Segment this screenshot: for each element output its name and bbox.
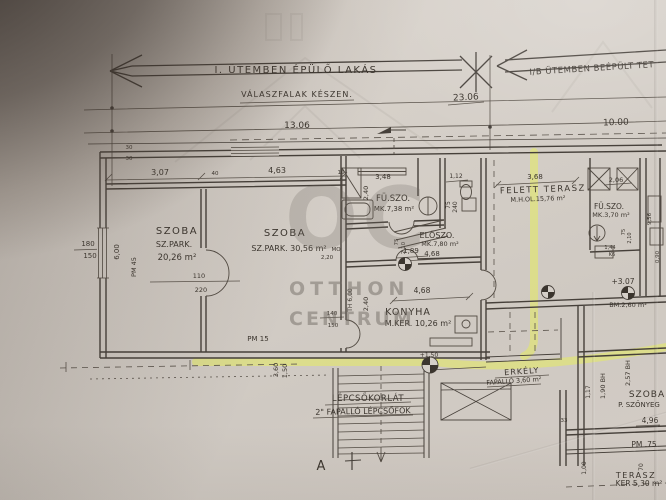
floor-plan-drawing: I. ÜTEMBEN ÉPÜLŐ LAKÁS VÁLASZFALAK KÉSZE… (0, 0, 666, 500)
door-dim-220: 220 (195, 286, 207, 294)
dim-3-07: 3,07 (151, 168, 169, 177)
phase-label-2: VÁLASZFALAK KÉSZEN. (241, 88, 353, 99)
note-lepcsokorlat: LÉPCSŐKORLÁT (332, 392, 405, 404)
room-label-furdo2: FÜ.SZO. (594, 202, 624, 211)
dim-23-06: 23.06 (453, 92, 480, 103)
dim-150b: 150 (328, 323, 339, 329)
ceiling-height-260: BM.2,60 m² (609, 301, 647, 309)
dim-pm-45: PM 45 (130, 257, 138, 277)
section-letter-A: A (317, 459, 326, 474)
room-floor-szoba2: SZ.PARK. 30,56 m² (251, 244, 326, 253)
room-label-eloszoba: ELŐSZO. (420, 230, 455, 240)
room-area-furdo2: MK.3,70 m² (592, 211, 630, 219)
dim-1-17: 1,17 (585, 385, 592, 399)
dim-40: 40 (212, 171, 219, 177)
dim-30-b: 30 (126, 156, 133, 162)
dim-k6: K6 (609, 252, 615, 258)
dim-4-68-kitchen: 4,68 (414, 286, 431, 295)
dim-1-44: 1,44 (604, 245, 615, 251)
room-area-konyha: M.KER. 10,26 m² (385, 319, 452, 328)
area-sub-felett-terasz: M.H.OL.15,76 m² (510, 194, 566, 204)
room-area-eloszoba: MK.7,80 m² (421, 240, 459, 248)
dim-3-48: 3,48 (375, 173, 391, 181)
section-marker-A-bottom (345, 452, 361, 470)
note-fapallo-lepcso: 2" FAPALLÓ LÉPCSŐFOK (315, 404, 411, 417)
room-label-konyha: KONYHA (385, 307, 431, 318)
phase-label-right: I/B ÜTEMBEN BEÉPÜLT TET (529, 58, 655, 78)
dim-4-68-hall: 4,68 (424, 250, 440, 258)
landing-hatch (441, 383, 511, 420)
window-dim-150: 150 (83, 252, 96, 260)
room-label-szoba3: SZOBA (629, 390, 665, 400)
dim-210-r: 2,10 (627, 232, 633, 243)
survey-marker (542, 286, 555, 299)
chimney-shaft-icon (588, 168, 610, 190)
dim-10-00: 10.00 (603, 118, 629, 129)
dim-pm-15: PM 15 (247, 335, 268, 343)
dim-0-90: 0,90 (655, 250, 661, 263)
dim-2-20: 2,20 (321, 255, 334, 261)
dim-2-40-b: 2,40 (362, 297, 370, 311)
dim-1-12: 1,12 (449, 173, 463, 180)
dim-33: 33 (561, 418, 568, 424)
dim-30-a: 30 (126, 145, 133, 151)
dim-10: 10 (338, 170, 345, 176)
survey-marker (399, 258, 412, 271)
dim-140: 140 (327, 311, 338, 317)
dimension-chains (60, 54, 666, 426)
dim-4-96: 4,96 (642, 416, 659, 425)
washbasin-icon (419, 197, 437, 215)
room-floor-szoba1: SZ.PARK. (156, 240, 192, 249)
window-dim-180: 180 (81, 240, 94, 248)
dim-257-bh: 2,57 BH (624, 360, 632, 386)
dim-wc-240: 240 (452, 201, 459, 213)
room-floor-szoba3: P. SZŐNYEG (618, 400, 660, 409)
phase-label-1: I. ÜTEMBEN ÉPÜLŐ LAKÁS (214, 62, 377, 76)
door-dim-110: 110 (193, 272, 205, 280)
survey-marker (422, 357, 438, 373)
room-label-szoba1: SZOBA (156, 226, 198, 237)
area-sub-terasz: KER 5,30 m² (616, 479, 663, 488)
dim-hall-210: 2,10 (401, 241, 407, 254)
room-label-szoba2: SZOBA (264, 228, 306, 239)
toilet-icon (460, 181, 472, 200)
dim-3-68: 3,68 (527, 173, 543, 181)
wc-sink-icon (462, 198, 476, 211)
dim-4-63: 4,63 (268, 166, 286, 175)
dim-th-600: TH 6,00 (347, 288, 354, 313)
highlighter-stroke-vertical (524, 152, 534, 356)
floor-plan-photo: I. ÜTEMBEN ÉPÜLŐ LAKÁS VÁLASZFALAK KÉSZE… (0, 0, 666, 500)
dim-70: 70 (638, 463, 645, 471)
note-mo: MO (331, 247, 341, 253)
level-mark-307: +3.07 (612, 277, 635, 286)
dim-6-00: 6,00 (113, 244, 121, 260)
dim-3-60-v: 3,60 (272, 363, 280, 377)
survey-marker (622, 287, 635, 300)
room-label-furdo1: FÜ.SZO. (376, 193, 410, 204)
washbasin-icon (589, 225, 605, 241)
room-area-szoba1: 20,26 m² (158, 253, 197, 263)
level-mark-150: +1,50 (420, 352, 439, 359)
dim-hall-75: 75 (394, 238, 400, 245)
dim-pm-75: PM .75 (631, 440, 657, 449)
dim-190-bh: 1,90 BH (599, 373, 607, 399)
dim-1-50-v: 1,50 (281, 364, 289, 378)
dim-2-40-a: 2,40 (362, 186, 370, 200)
dim-wc-75: 75 (445, 201, 452, 209)
dim-2-06: 2,06 (609, 176, 623, 184)
dim-1-00: 1,00 (581, 461, 588, 475)
dim-9-56: 9,56 (647, 212, 653, 225)
dim-13-06: 13.06 (284, 121, 310, 131)
room-area-furdo1: MK.7,38 m² (374, 205, 414, 213)
